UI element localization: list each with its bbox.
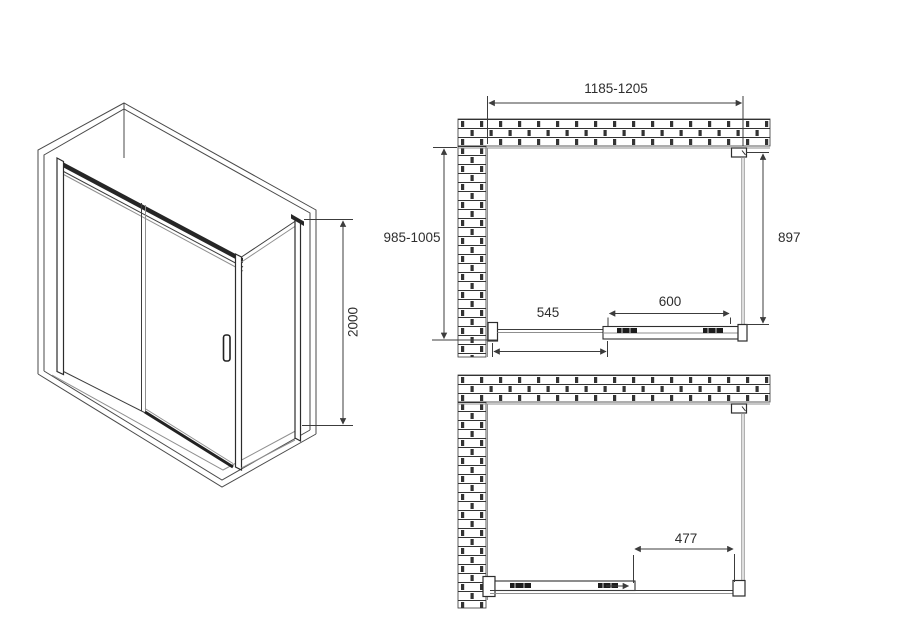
wall-profile-left: [57, 158, 64, 375]
dimension-door-panel: 600: [608, 294, 731, 326]
dim-label-side-panel: 897: [778, 230, 801, 245]
brick-wall-side: [458, 402, 486, 608]
dim-label-overall-width: 1185-1205: [584, 81, 648, 96]
dimension-fixed-segment: 545: [493, 305, 608, 357]
perspective-view: 2000: [38, 103, 361, 487]
brick-wall-top: [458, 375, 770, 402]
roller: [703, 328, 723, 333]
end-bracket: [738, 325, 747, 342]
dim-label-overall-depth: 985-1005: [383, 230, 440, 245]
door-assembly-closed: [488, 323, 747, 342]
door-handle: [224, 335, 231, 361]
end-bracket: [733, 581, 745, 597]
dim-label-opening: 477: [675, 531, 698, 546]
side-panel-plan: [732, 404, 747, 582]
dimension-height: 2000: [302, 220, 361, 426]
wall-profile-bracket: [488, 323, 498, 342]
brick-wall-top: [458, 119, 770, 146]
shower-enclosure-technical-drawing: 2000: [0, 0, 900, 636]
dimension-side-panel: 897: [746, 153, 801, 325]
dim-label-door-panel: 600: [659, 294, 682, 309]
side-panel-3d: [242, 214, 305, 468]
dimension-opening: 477: [634, 531, 735, 583]
top-rail: [57, 159, 243, 271]
dim-label-height: 2000: [346, 307, 361, 337]
drawing-svg: 2000: [0, 0, 900, 636]
dim-label-fixed-segment: 545: [537, 305, 560, 320]
corner-post: [236, 254, 242, 470]
roller: [617, 328, 637, 333]
plan-view-closed: 1185-1205 985-1005 897 545 600: [383, 81, 800, 357]
side-panel-plan: [732, 148, 747, 325]
brick-wall-side: [458, 146, 486, 357]
roller: [510, 583, 531, 588]
plan-view-open: 477: [458, 375, 770, 608]
outer-wireframe: [38, 103, 316, 487]
wall-bracket: [732, 148, 747, 157]
door-assembly-open: [483, 577, 745, 597]
wall-bracket: [732, 404, 747, 413]
